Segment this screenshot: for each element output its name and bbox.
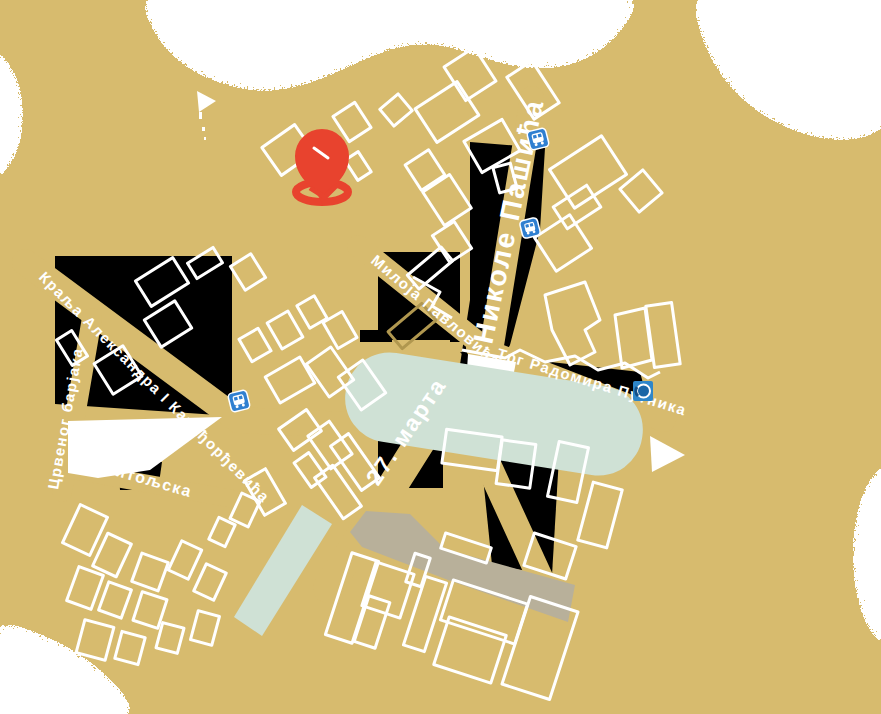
map-canvas[interactable]: Николе Пашића Краља Александра I Карађор… — [0, 0, 881, 714]
flag-dot — [204, 137, 206, 140]
fountain-icon[interactable] — [633, 381, 653, 401]
flag-pole — [199, 112, 202, 119]
flag-dot — [202, 127, 205, 131]
bus-stop-icon[interactable] — [227, 389, 250, 412]
bus-stop-icon[interactable] — [526, 127, 549, 150]
bus-stop-icon[interactable] — [519, 217, 541, 239]
